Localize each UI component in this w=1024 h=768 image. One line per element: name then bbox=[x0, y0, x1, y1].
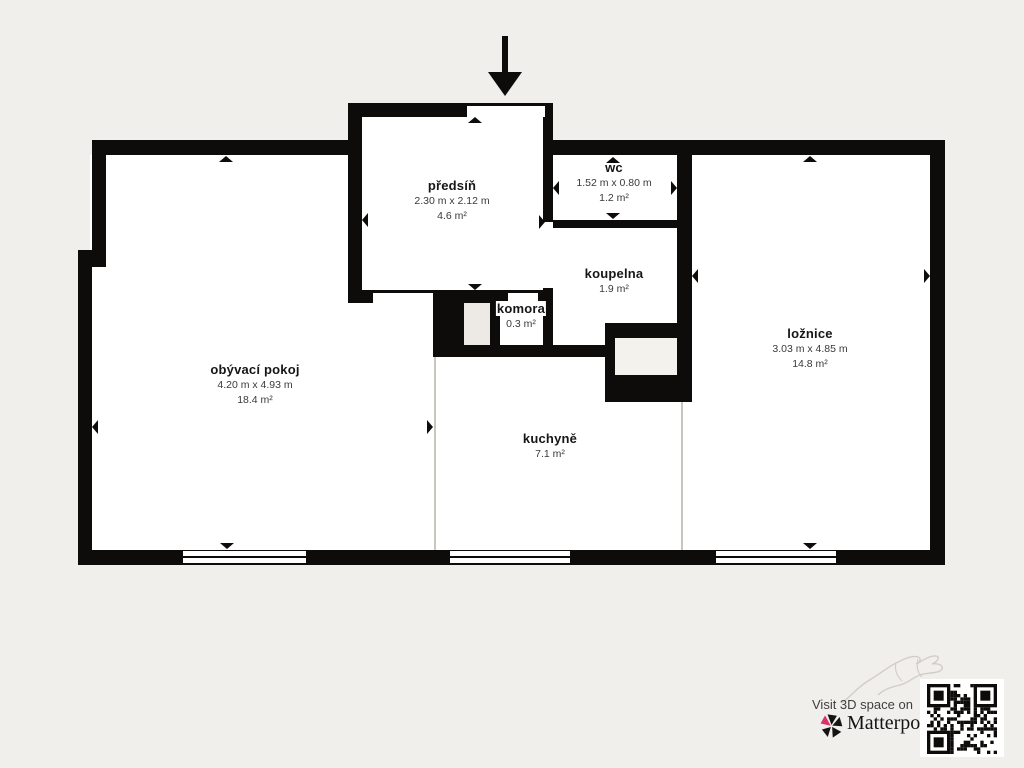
room-area: 0.3 m² bbox=[496, 318, 546, 331]
divider-living-kitchen bbox=[434, 357, 436, 550]
shaft-inset bbox=[615, 338, 677, 375]
window-kitchen-icon bbox=[450, 551, 570, 563]
wall-living-hallway bbox=[348, 140, 362, 303]
dimension-arrow-icon bbox=[803, 543, 817, 549]
room-name: obývací pokoj bbox=[210, 362, 299, 377]
room-label-koupelna: koupelna 1.9 m² bbox=[585, 266, 644, 296]
dimension-arrow-icon bbox=[553, 181, 559, 195]
wall-top-left bbox=[92, 140, 362, 155]
qr-code bbox=[927, 684, 997, 754]
room-area: 4.6 m² bbox=[414, 210, 489, 223]
dimension-arrow-icon bbox=[219, 156, 233, 162]
door-swing-icon bbox=[539, 215, 545, 229]
room-name: ložnice bbox=[772, 326, 847, 341]
entrance-arrow-head-icon bbox=[488, 72, 522, 96]
wall-left-lower bbox=[78, 250, 92, 565]
wall-top-right bbox=[543, 140, 945, 155]
room-label-wc: wc 1.52 m x 0.80 m 1.2 m² bbox=[576, 160, 651, 205]
dimension-arrow-icon bbox=[606, 213, 620, 219]
window-pane-line bbox=[450, 556, 570, 558]
room-label-loznice: ložnice 3.03 m x 4.85 m 14.8 m² bbox=[772, 326, 847, 371]
dimension-arrow-icon bbox=[924, 269, 930, 283]
matterport-logo-icon bbox=[819, 713, 844, 739]
hallway-protrusion-floor bbox=[362, 117, 543, 157]
living-room-opening bbox=[373, 293, 433, 303]
visit-3d-text: Visit 3D space on bbox=[812, 697, 913, 712]
divider-kitchen-bedroom bbox=[681, 402, 683, 550]
window-pane-line bbox=[183, 556, 306, 558]
dimension-arrow-icon bbox=[362, 213, 368, 227]
wall-closet-block bbox=[433, 292, 464, 357]
dimension-arrow-icon bbox=[468, 117, 482, 123]
room-area: 1.2 m² bbox=[576, 192, 651, 205]
wall-left-upper bbox=[92, 140, 106, 267]
void-niche bbox=[464, 303, 490, 345]
floorplan: předsíň 2.30 m x 2.12 m 4.6 m² wc 1.52 m… bbox=[0, 0, 1024, 768]
room-name: wc bbox=[576, 160, 651, 175]
room-name: kuchyně bbox=[523, 431, 577, 446]
room-name: komora bbox=[496, 301, 546, 316]
room-area: 14.8 m² bbox=[772, 358, 847, 371]
room-label-komora: komora 0.3 m² bbox=[496, 301, 546, 331]
room-area: 7.1 m² bbox=[523, 448, 577, 461]
room-dimensions: 4.20 m x 4.93 m bbox=[210, 379, 299, 392]
room-area: 18.4 m² bbox=[210, 394, 299, 407]
dimension-arrow-icon bbox=[468, 284, 482, 290]
entrance-door-opening bbox=[467, 106, 545, 117]
room-area: 1.9 m² bbox=[585, 283, 644, 296]
window-bedroom-icon bbox=[716, 551, 836, 563]
room-name: koupelna bbox=[585, 266, 644, 281]
dimension-arrow-icon bbox=[671, 181, 677, 195]
wall-right bbox=[930, 140, 945, 565]
room-name: předsíň bbox=[414, 178, 489, 193]
room-dimensions: 3.03 m x 4.85 m bbox=[772, 343, 847, 356]
window-pane-line bbox=[716, 556, 836, 558]
wall-wc-bathroom bbox=[553, 220, 677, 228]
dimension-arrow-icon bbox=[92, 420, 98, 434]
dimension-arrow-icon bbox=[220, 543, 234, 549]
dimension-arrow-icon bbox=[803, 156, 817, 162]
wall-hallway-right-upper bbox=[543, 117, 553, 222]
window-living-room-icon bbox=[183, 551, 306, 563]
room-dimensions: 1.52 m x 0.80 m bbox=[576, 177, 651, 190]
dimension-arrow-icon bbox=[427, 420, 433, 434]
room-label-predsin: předsíň 2.30 m x 2.12 m 4.6 m² bbox=[414, 178, 489, 223]
room-label-obyvaci-pokoj: obývací pokoj 4.20 m x 4.93 m 18.4 m² bbox=[210, 362, 299, 407]
entrance-arrow-icon bbox=[502, 36, 508, 74]
room-label-kuchyne: kuchyně 7.1 m² bbox=[523, 431, 577, 461]
dimension-arrow-icon bbox=[692, 269, 698, 283]
room-dimensions: 2.30 m x 2.12 m bbox=[414, 195, 489, 208]
